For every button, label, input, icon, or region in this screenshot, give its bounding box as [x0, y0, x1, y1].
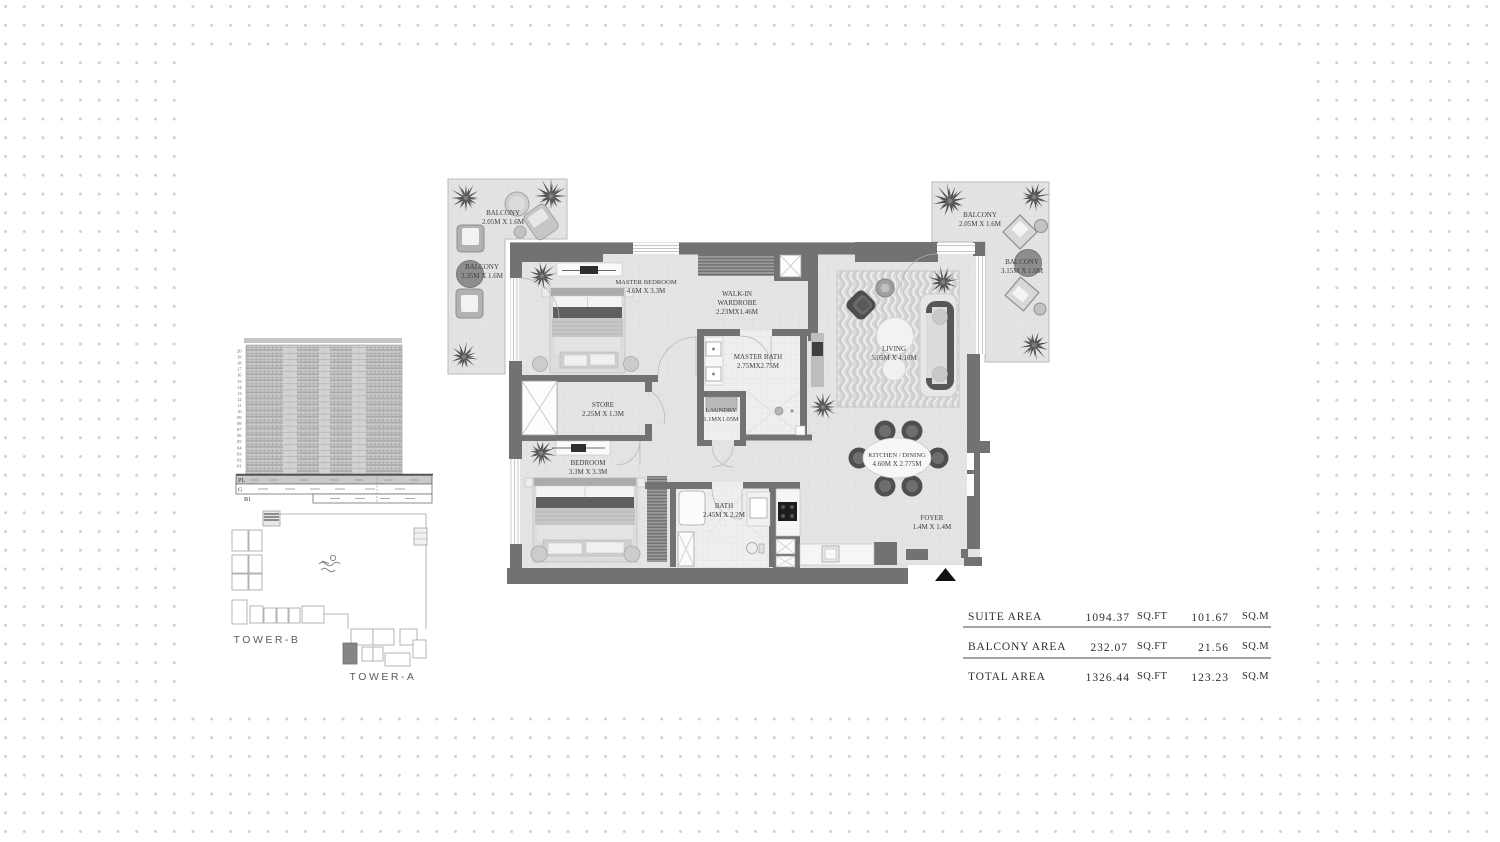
svg-text:3.15M X 1.6M: 3.15M X 1.6M: [1001, 267, 1044, 275]
svg-text:BALCONY AREA: BALCONY AREA: [968, 641, 1066, 653]
svg-text:BALCONY: BALCONY: [486, 209, 520, 217]
svg-text:TOTAL AREA: TOTAL AREA: [968, 671, 1046, 683]
svg-text:17: 17: [237, 367, 242, 372]
svg-text:101.67: 101.67: [1191, 612, 1229, 624]
svg-text:1.1MX1.05M: 1.1MX1.05M: [703, 416, 738, 423]
svg-text:2.75MX2.75M: 2.75MX2.75M: [737, 362, 780, 370]
svg-text:15: 15: [237, 379, 242, 384]
svg-text:2.23MX1.46M: 2.23MX1.46M: [716, 308, 759, 316]
svg-text:06: 06: [237, 433, 242, 438]
svg-text:1.4M X 1.4M: 1.4M X 1.4M: [913, 523, 952, 531]
svg-text:11: 11: [237, 403, 242, 408]
svg-text:SQ.FT: SQ.FT: [1137, 671, 1167, 682]
svg-text:12: 12: [237, 397, 242, 402]
svg-text:2.05M X 1.6M: 2.05M X 1.6M: [482, 218, 525, 226]
svg-text:13: 13: [237, 391, 242, 396]
svg-text:TOWER-A: TOWER-A: [350, 671, 417, 683]
svg-text:19: 19: [237, 355, 242, 360]
svg-text:PL: PL: [238, 477, 245, 484]
svg-text:TOWER-B: TOWER-B: [234, 634, 301, 646]
svg-text:BATH: BATH: [715, 502, 733, 510]
svg-text:LAUNDRY: LAUNDRY: [706, 407, 737, 414]
svg-text:1094.37: 1094.37: [1086, 612, 1130, 624]
svg-text:21.56: 21.56: [1198, 642, 1229, 654]
svg-text:4.6M X 3.3M: 4.6M X 3.3M: [627, 287, 666, 295]
svg-text:07: 07: [237, 427, 242, 432]
svg-text:LIVING: LIVING: [882, 345, 906, 353]
svg-text:5.05M X 4.10M: 5.05M X 4.10M: [871, 354, 917, 362]
svg-text:2.05M X 1.6M: 2.05M X 1.6M: [959, 220, 1002, 228]
svg-text:01: 01: [237, 463, 242, 468]
svg-text:SQ.M: SQ.M: [1242, 641, 1269, 652]
svg-text:BALCONY: BALCONY: [1005, 258, 1039, 266]
svg-text:08: 08: [237, 421, 242, 426]
svg-text:18: 18: [237, 361, 242, 366]
svg-text:SQ.M: SQ.M: [1242, 671, 1269, 682]
svg-text:SQ.M: SQ.M: [1242, 611, 1269, 622]
svg-text:05: 05: [237, 439, 242, 444]
svg-text:WALK-IN: WALK-IN: [722, 290, 752, 298]
svg-text:10: 10: [237, 409, 242, 414]
svg-text:232.07: 232.07: [1090, 642, 1128, 654]
svg-text:SUITE AREA: SUITE AREA: [968, 611, 1042, 623]
svg-text:MASTER BATH: MASTER BATH: [734, 353, 782, 361]
svg-text:02: 02: [237, 457, 242, 462]
svg-text:BALCONY: BALCONY: [465, 263, 499, 271]
svg-text:16: 16: [237, 373, 242, 378]
svg-text:G: G: [238, 487, 243, 494]
svg-text:3.35M X 1.6M: 3.35M X 1.6M: [461, 272, 504, 280]
svg-text:2.45M X 2.2M: 2.45M X 2.2M: [703, 511, 746, 519]
svg-text:4.60M X 2.775M: 4.60M X 2.775M: [872, 460, 922, 468]
svg-text:123.23: 123.23: [1191, 672, 1229, 684]
svg-text:BALCONY: BALCONY: [963, 211, 997, 219]
svg-text:04: 04: [237, 445, 242, 450]
svg-text:KITCHEN / DINING: KITCHEN / DINING: [868, 452, 926, 459]
svg-text:B1: B1: [244, 496, 251, 503]
svg-text:3.3M X 3.3M: 3.3M X 3.3M: [569, 468, 608, 476]
svg-text:WARDROBE: WARDROBE: [717, 299, 756, 307]
svg-text:09: 09: [237, 415, 242, 420]
svg-text:03: 03: [237, 451, 242, 456]
svg-text:STORE: STORE: [592, 401, 614, 409]
svg-text:14: 14: [237, 385, 242, 390]
svg-text:SQ.FT: SQ.FT: [1137, 611, 1167, 622]
svg-text:2.25M X 1.3M: 2.25M X 1.3M: [582, 410, 625, 418]
svg-text:FOYER: FOYER: [921, 514, 944, 522]
svg-text:20: 20: [237, 349, 242, 354]
svg-text:MASTER BEDROOM: MASTER BEDROOM: [615, 279, 677, 286]
svg-text:SQ.FT: SQ.FT: [1137, 641, 1167, 652]
svg-text:1326.44: 1326.44: [1086, 672, 1130, 684]
svg-text:BEDROOM: BEDROOM: [570, 459, 606, 467]
